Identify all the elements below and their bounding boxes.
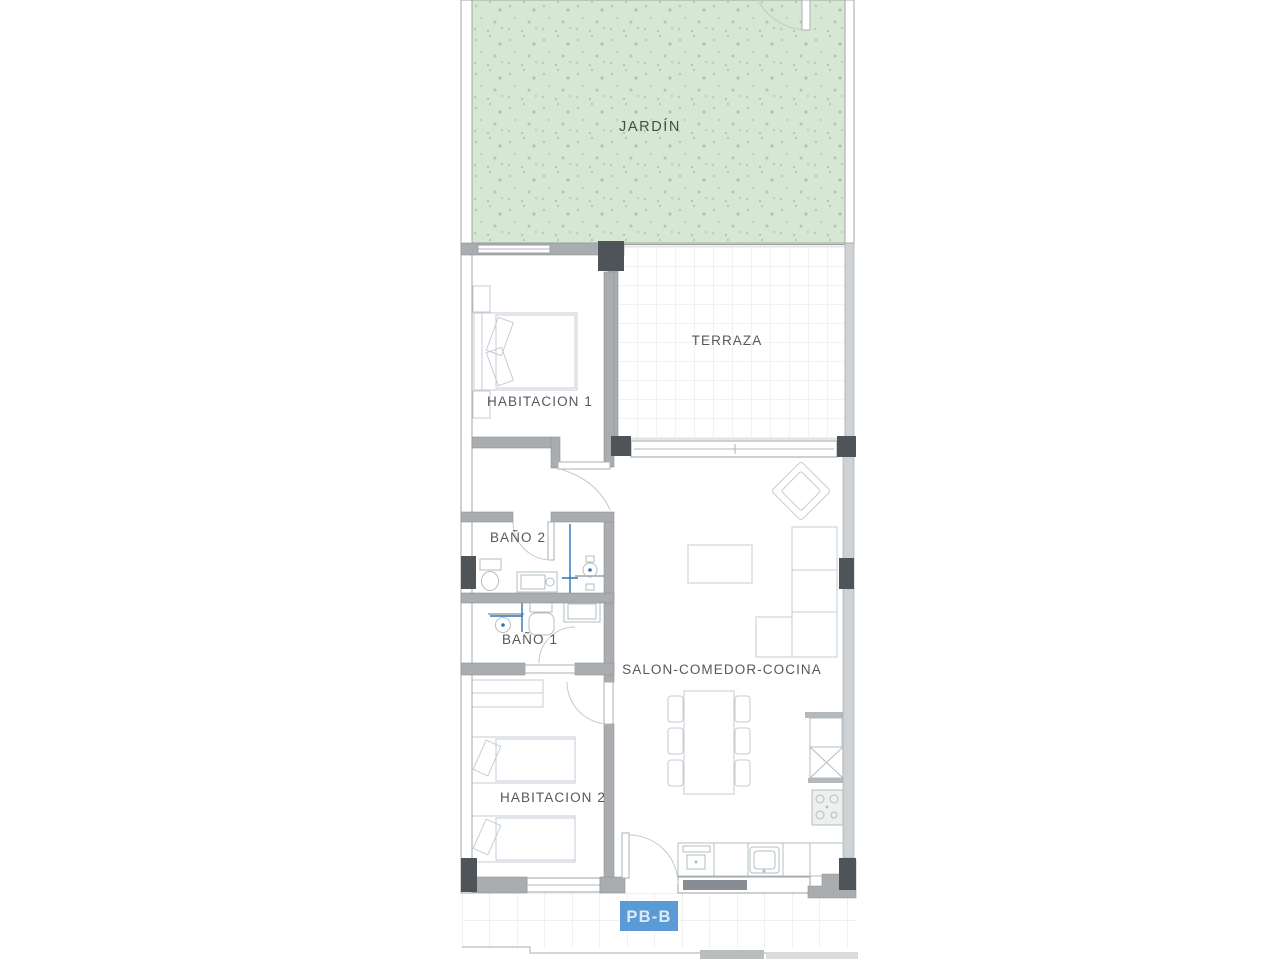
unit-badge: PB-B bbox=[620, 901, 678, 931]
fridge bbox=[810, 747, 843, 778]
dining-chair bbox=[668, 760, 683, 786]
bathroom1-fixtures bbox=[488, 598, 600, 635]
window-bedroom2 bbox=[527, 878, 600, 892]
label-habitacion2: HABITACION 2 bbox=[500, 790, 606, 805]
pillar bbox=[837, 436, 856, 457]
window-bedroom1 bbox=[478, 245, 550, 253]
toilet bbox=[480, 559, 501, 591]
label-jardin: JARDÍN bbox=[619, 118, 681, 135]
coffee-table bbox=[688, 545, 752, 583]
single-bed-1 bbox=[472, 737, 575, 783]
label-salon: SALON-COMEDOR-COCINA bbox=[622, 662, 822, 677]
window-kitchen bbox=[683, 880, 747, 890]
pillar bbox=[461, 556, 476, 589]
kitchen-counter bbox=[678, 843, 845, 876]
dining-set bbox=[668, 691, 750, 794]
dining-chair bbox=[735, 728, 750, 754]
dining-chair bbox=[735, 760, 750, 786]
wall bbox=[461, 593, 614, 603]
dining-chair bbox=[668, 728, 683, 754]
cabinet-divider bbox=[808, 778, 843, 783]
door-bedroom2 bbox=[567, 682, 613, 724]
corner-sofa bbox=[756, 527, 837, 657]
walkway-curb bbox=[700, 950, 764, 959]
pillar bbox=[839, 558, 854, 589]
hob bbox=[812, 790, 843, 825]
cabinet-divider bbox=[805, 712, 843, 718]
dining-table bbox=[684, 691, 734, 794]
walkway-curb-2 bbox=[766, 952, 858, 959]
exterior-wall-garden-right bbox=[845, 0, 854, 243]
dining-chair bbox=[668, 696, 683, 722]
wall bbox=[472, 437, 551, 448]
armchair bbox=[771, 461, 830, 520]
label-bano2: BAÑO 2 bbox=[490, 530, 546, 545]
tall-cabinet bbox=[810, 718, 842, 747]
door-entrance bbox=[622, 833, 678, 884]
pedestal-sink bbox=[488, 614, 524, 633]
toilet bbox=[529, 601, 554, 635]
double-bed bbox=[474, 313, 577, 390]
exterior-wall-right bbox=[843, 456, 854, 858]
wall bbox=[575, 663, 614, 675]
plumbing-line bbox=[562, 524, 578, 597]
pillar bbox=[461, 858, 477, 892]
unit-badge-label: PB-B bbox=[626, 908, 671, 926]
washbasin bbox=[564, 601, 600, 622]
sliding-door-terrace bbox=[631, 441, 837, 457]
floor-plan-page: JARDÍN TERRAZA HABITACION 1 BAÑO 2 BAÑO … bbox=[0, 0, 1280, 960]
bedroom2-furniture bbox=[472, 680, 575, 862]
door-hall-to-salon bbox=[558, 462, 610, 510]
wall bbox=[551, 512, 614, 522]
kitchen-bottom-wall bbox=[678, 877, 810, 893]
wall bbox=[472, 877, 527, 893]
washbasin bbox=[517, 572, 557, 592]
pillar bbox=[611, 436, 631, 456]
shower bbox=[575, 556, 608, 590]
floor-plan-drawing: JARDÍN TERRAZA HABITACION 1 BAÑO 2 BAÑO … bbox=[0, 0, 1280, 960]
wall bbox=[461, 512, 513, 522]
label-habitacion1: HABITACION 1 bbox=[487, 394, 593, 409]
pillar bbox=[839, 858, 856, 890]
exterior-wall-left bbox=[461, 0, 472, 893]
wall bbox=[600, 877, 625, 893]
nightstand bbox=[473, 286, 490, 312]
exterior-wall-terrace-right bbox=[845, 243, 854, 438]
single-bed-2 bbox=[472, 816, 575, 862]
pillar bbox=[598, 241, 624, 271]
label-terraza: TERRAZA bbox=[692, 333, 763, 348]
wall bbox=[461, 663, 525, 675]
label-bano1: BAÑO 1 bbox=[502, 632, 558, 647]
dining-chair bbox=[735, 696, 750, 722]
